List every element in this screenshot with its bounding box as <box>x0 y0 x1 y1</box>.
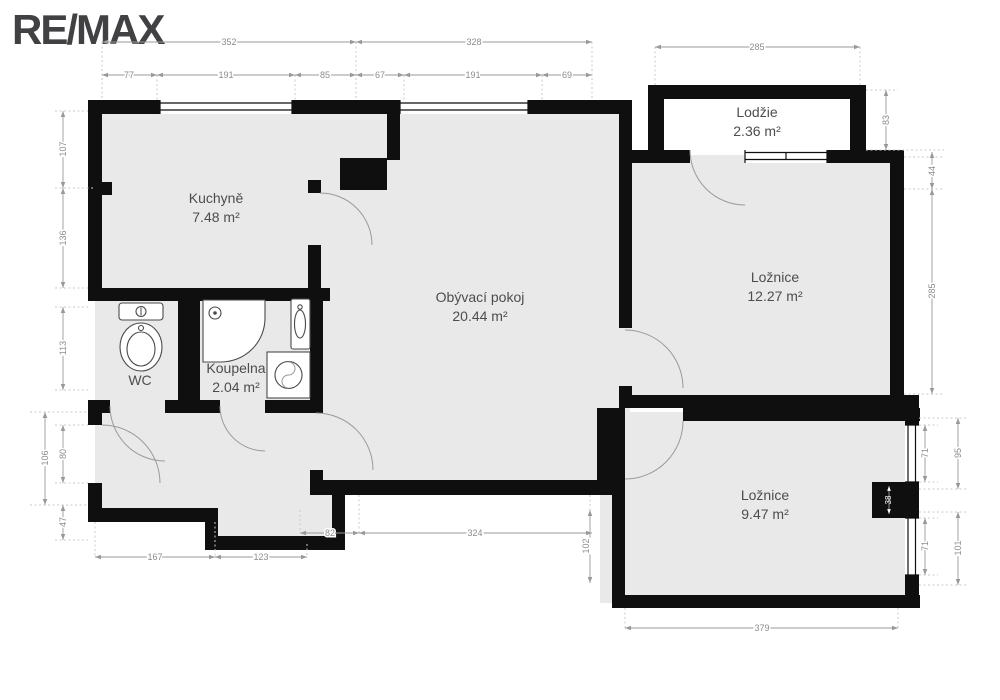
room-name-bedroom1: Ložnice <box>751 269 799 285</box>
dim-top-77: 77 <box>124 70 134 80</box>
window-symbol-bedroom2-lower <box>905 518 919 575</box>
room-area-living: 20.44 m² <box>452 308 508 324</box>
dim-top-352: 352 <box>221 37 236 47</box>
floor-plan-page: RE/MAX <box>0 0 1000 700</box>
dim-bottom-379: 379 <box>754 623 769 633</box>
dim-right-83: 83 <box>881 115 891 125</box>
dim-right-71a: 71 <box>920 448 930 458</box>
dim-right-71b: 71 <box>920 541 930 551</box>
washing-machine-icon <box>267 352 310 398</box>
dim-left-47: 47 <box>58 517 68 527</box>
dim-right-95: 95 <box>953 448 963 458</box>
dim-top-191b: 191 <box>465 70 480 80</box>
dim-left-113: 113 <box>58 341 68 355</box>
dim-left-107: 107 <box>58 141 68 156</box>
room-name-living: Obývací pokoj <box>436 289 525 305</box>
dim-top-67: 67 <box>375 70 385 80</box>
window-symbol-kitchen <box>160 100 292 114</box>
dim-left-136: 136 <box>58 230 68 245</box>
dim-bottom-123: 123 <box>253 552 268 562</box>
dim-top-69: 69 <box>562 70 572 80</box>
dim-top-285: 285 <box>749 42 764 52</box>
room-area-loggia: 2.36 m² <box>733 123 781 139</box>
sink-icon <box>291 299 310 349</box>
dim-bottom-82: 82 <box>325 528 335 538</box>
room-area-bedroom1: 12.27 m² <box>747 288 803 304</box>
window-symbol-loggia <box>745 150 827 163</box>
dim-top-328: 328 <box>466 37 481 47</box>
room-name-bedroom2: Ložnice <box>741 487 789 503</box>
window-symbol-living <box>400 100 528 114</box>
dim-right-101: 101 <box>953 540 963 555</box>
room-name-bathroom: Koupelna <box>206 360 265 376</box>
dim-top-191a: 191 <box>218 70 233 80</box>
room-area-bathroom: 2.04 m² <box>212 379 260 395</box>
dim-bottom-167: 167 <box>147 552 162 562</box>
floor-plan: 352 328 285 77 191 85 67 191 69 107 136 … <box>0 0 1000 700</box>
dim-right-285: 285 <box>927 283 937 298</box>
room-name-wc: WC <box>128 372 151 388</box>
room-name-loggia: Lodžie <box>736 104 777 120</box>
dim-top-85: 85 <box>320 70 330 80</box>
room-area-bedroom2: 9.47 m² <box>741 506 789 522</box>
room-name-kitchen: Kuchyně <box>189 190 244 206</box>
dim-bottom-324: 324 <box>467 528 482 538</box>
window-symbol-bedroom2-upper <box>905 425 919 482</box>
toilet-icon <box>119 303 163 371</box>
dim-right-44: 44 <box>927 166 937 176</box>
dim-right-38: 38 <box>884 495 893 504</box>
dim-left-106: 106 <box>40 450 50 465</box>
room-area-kitchen: 7.48 m² <box>192 209 240 225</box>
dim-bottom-102: 102 <box>581 538 591 553</box>
dim-left-80: 80 <box>58 449 68 459</box>
